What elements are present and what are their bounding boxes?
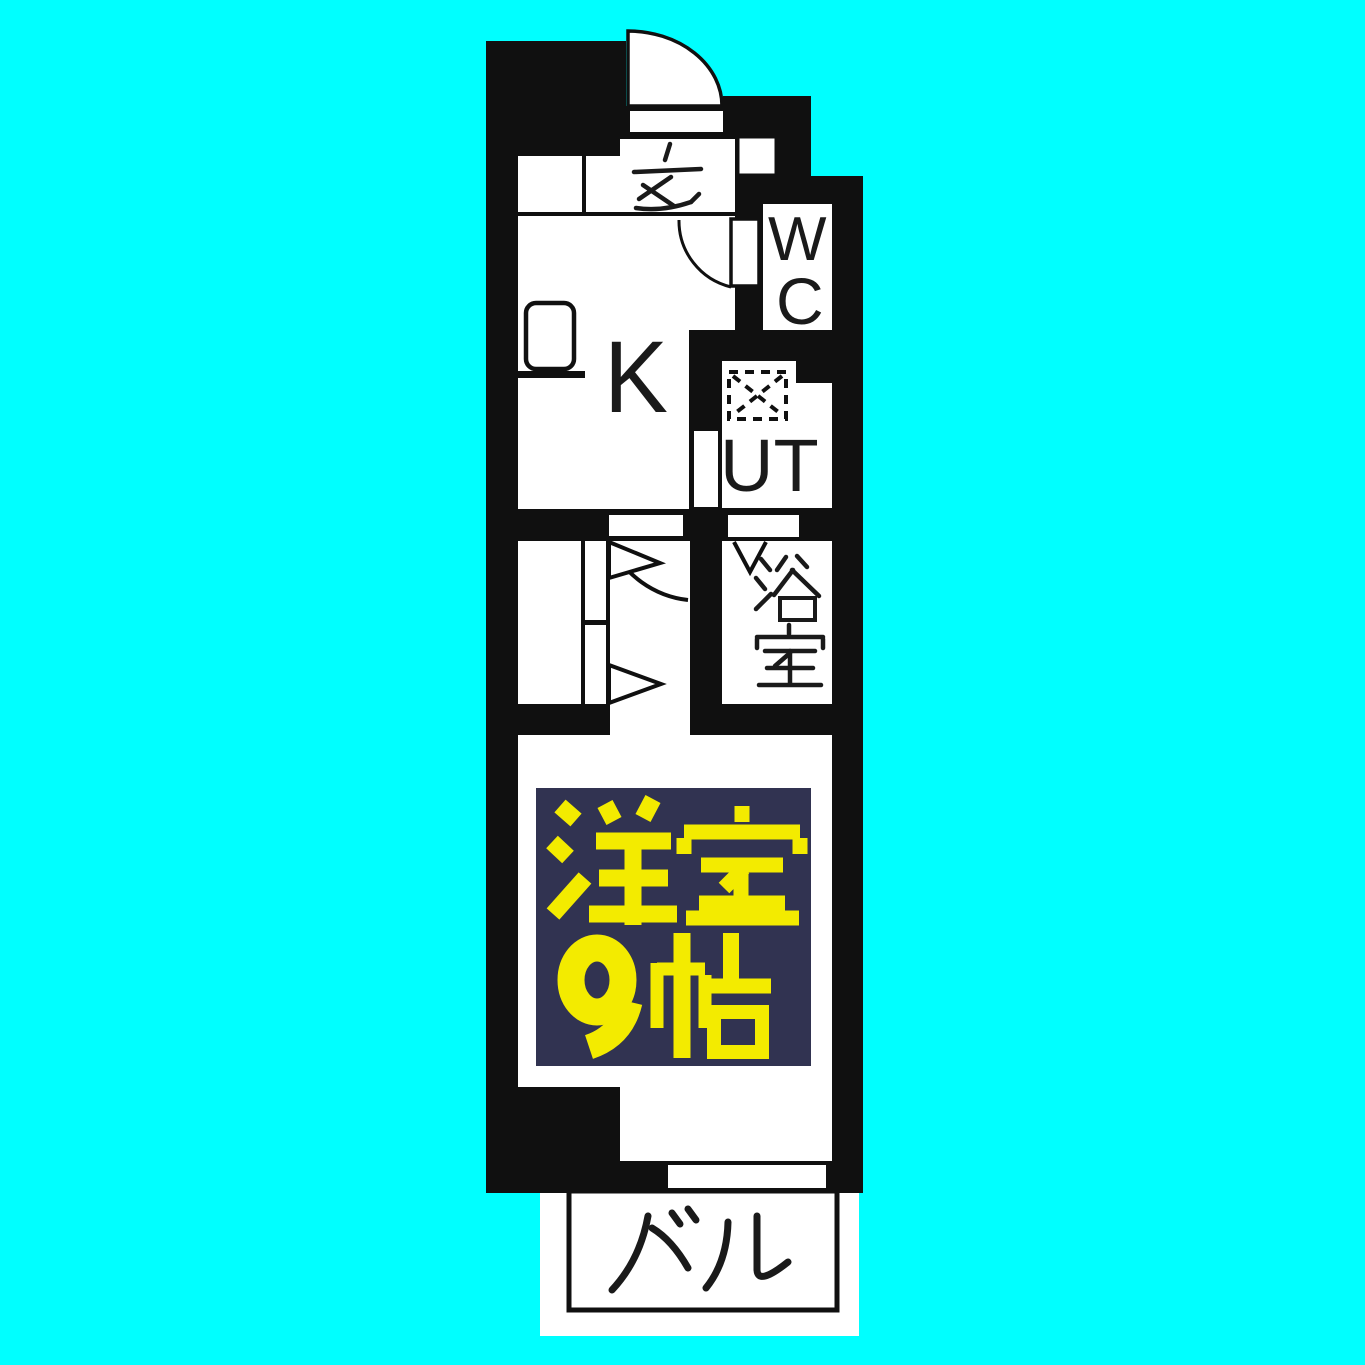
svg-text:C: C <box>776 264 824 338</box>
svg-text:K: K <box>604 319 668 433</box>
svg-text:UT: UT <box>720 424 819 507</box>
